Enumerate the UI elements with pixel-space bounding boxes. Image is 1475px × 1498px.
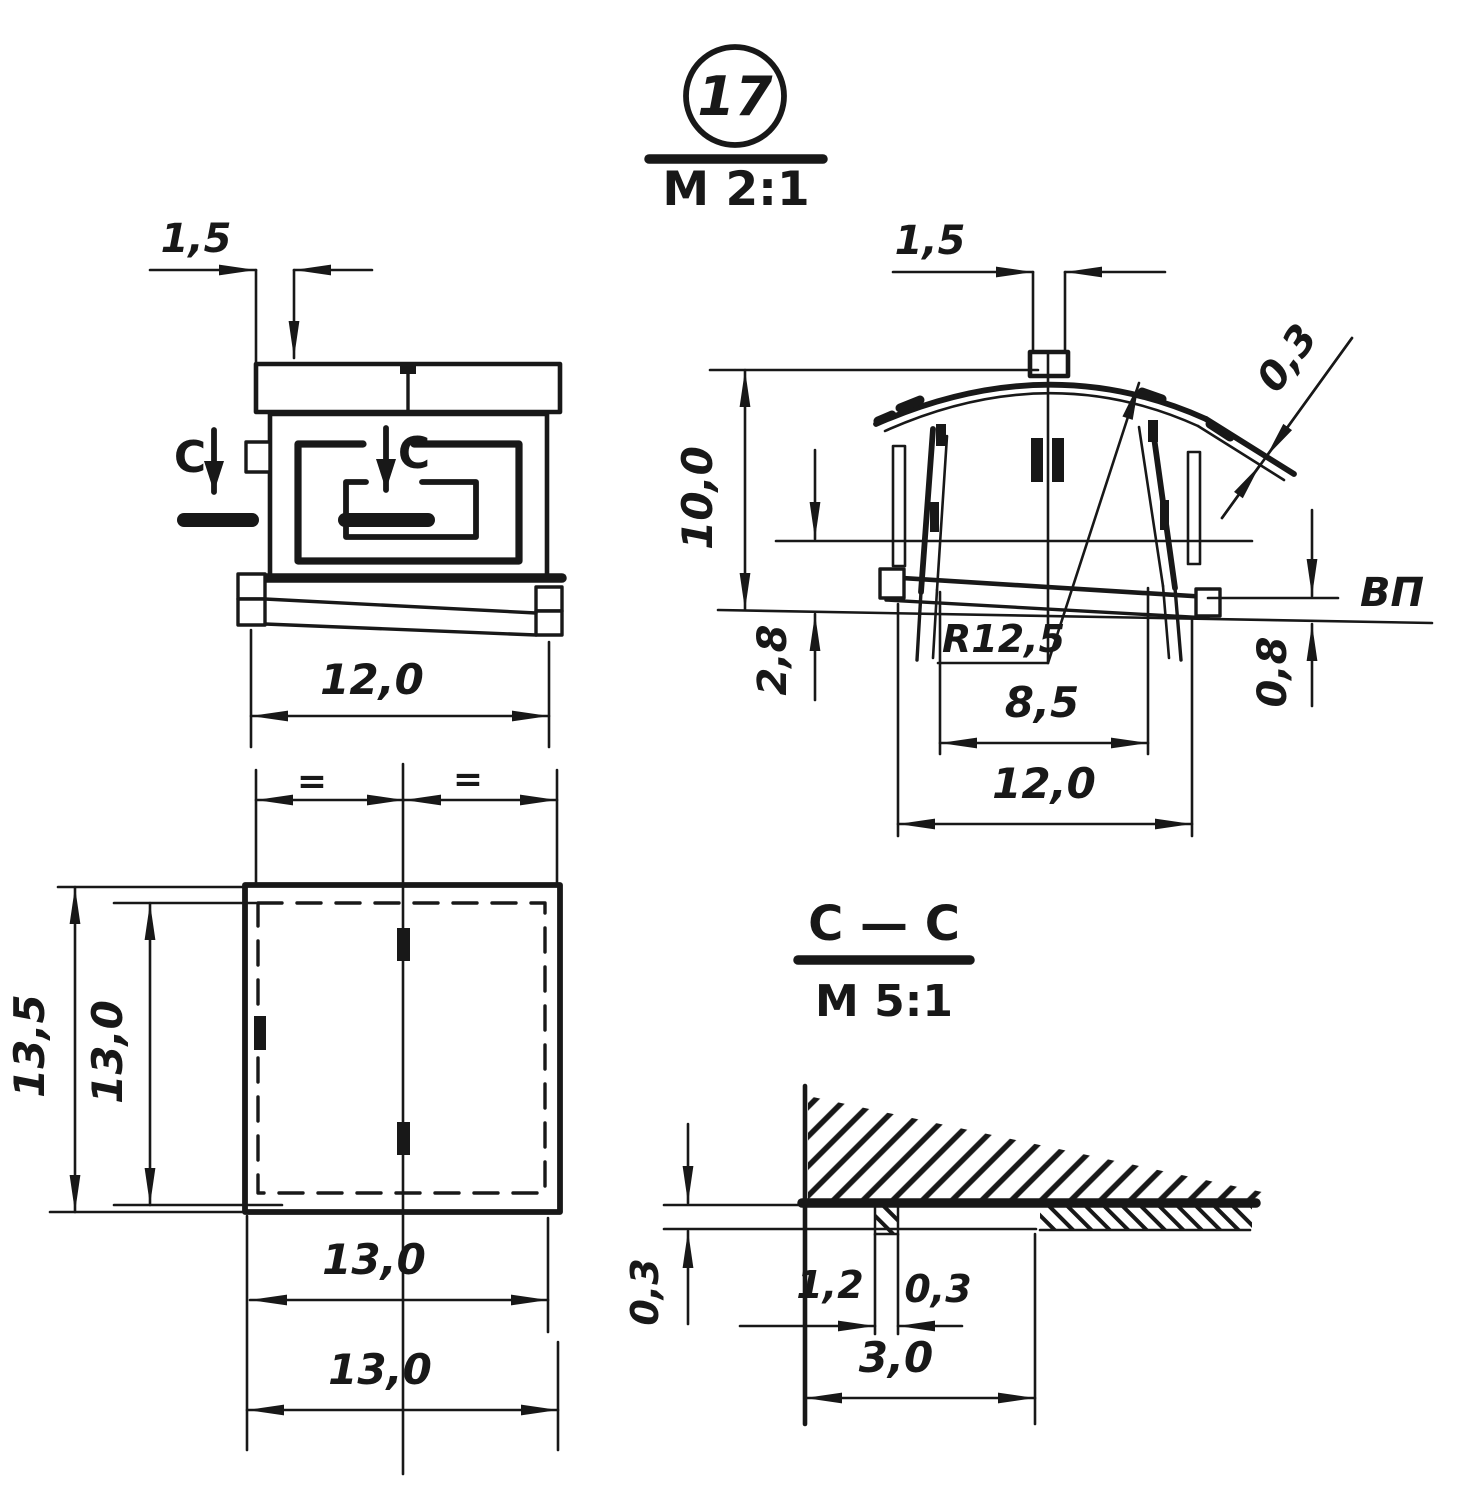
roof-right-wing-inner	[1198, 426, 1284, 480]
front-cap-notch	[400, 364, 416, 374]
dim-front-tab-offset-label: 1,5	[161, 216, 232, 262]
dim-side-tab-width: 1,5	[893, 218, 1165, 356]
plan-view: = = 13,5 13,0 13,0 13,0	[5, 759, 560, 1474]
side-right-wall-inner	[1139, 427, 1163, 586]
rib-section	[875, 1203, 898, 1234]
wall-latch-marks	[930, 420, 1169, 532]
equal-mark-left: =	[297, 761, 327, 802]
section-title: C — C	[808, 896, 960, 952]
dim-side-width-label: 12,0	[992, 759, 1096, 808]
dim-mid-to-waterline-label: 2,8	[750, 625, 796, 696]
dim-front-width-label: 12,0	[320, 655, 424, 704]
section-view: C — C M 5:1 0,3 1,2 0,3	[623, 896, 1262, 1424]
dim-section-width-label: 3,0	[859, 1333, 933, 1382]
dim-wall-thickness: 0,3	[623, 1124, 688, 1326]
dim-front-tab-offset: 1,5	[150, 216, 372, 364]
dim-sheet-thickness: 0,3	[1222, 316, 1352, 518]
plan-center-mark-lower	[397, 1122, 410, 1155]
dim-mid-to-waterline: 2,8	[750, 450, 815, 700]
center-tab-left	[1031, 438, 1043, 482]
section-hatch-block	[808, 1096, 1262, 1202]
front-slot-inner	[346, 482, 476, 537]
dim-plan-width-outer-label: 13,0	[328, 1345, 432, 1394]
side-view: 1,5	[673, 218, 1432, 836]
dim-plan-inner-depth-label: 13,0	[83, 1000, 132, 1104]
dim-wall-thickness-label: 0,3	[623, 1258, 667, 1325]
roof-arc-outer	[876, 385, 1206, 424]
dim-side-tab-width-label: 1,5	[895, 218, 966, 264]
drawing-sheet: 17 M 2:1 1,5 C C	[0, 0, 1475, 1498]
main-scale: M 2:1	[662, 162, 809, 217]
part-number: 17	[697, 65, 773, 128]
dim-plan-outer-depth-label: 13,5	[5, 994, 54, 1098]
section-title-block: C — C M 5:1	[798, 896, 970, 1027]
dim-skid-to-waterline-label: 0,8	[1250, 637, 1296, 708]
front-side-tab	[246, 442, 270, 472]
section-letter-left: C	[174, 432, 206, 483]
side-left-bracket	[893, 446, 905, 566]
dim-rib-thickness-label: 0,3	[904, 1267, 971, 1311]
dim-skid-to-waterline: 0,8	[1208, 510, 1338, 707]
plan-center-mark-upper	[397, 928, 410, 961]
side-right-bracket	[1188, 452, 1200, 564]
dim-rib-offset: 1,2	[740, 1263, 875, 1326]
front-skid	[238, 574, 562, 635]
dim-rib-offset-label: 1,2	[796, 1263, 863, 1307]
dim-rib-thickness: 0,3	[898, 1267, 972, 1326]
dim-front-width: 12,0	[251, 630, 549, 747]
roof-radius-label: R12,5	[942, 617, 1065, 661]
sheet-hatch-right	[1040, 1206, 1252, 1230]
section-arrow-left: C	[174, 430, 252, 520]
section-scale: M 5:1	[815, 976, 953, 1027]
dim-plan-width-inner-label: 13,0	[322, 1235, 426, 1284]
engineering-drawing: 17 M 2:1 1,5 C C	[0, 0, 1475, 1498]
dim-side-height-label: 10,0	[673, 446, 722, 550]
front-view: 1,5 C C	[150, 216, 562, 747]
dim-equal-halves: = =	[256, 759, 557, 886]
dim-side-height: 10,0	[673, 370, 1038, 610]
plan-edge-mark	[254, 1016, 266, 1050]
dim-side-inner-width-label: 8,5	[1005, 678, 1079, 727]
dim-plan-inner-depth: 13,0	[83, 903, 282, 1205]
dim-plan-width-inner: 13,0	[247, 1216, 548, 1450]
title-block: 17 M 2:1	[649, 47, 823, 217]
equal-mark-right: =	[453, 759, 483, 800]
roof-radius-callout: R12,5	[938, 383, 1139, 663]
waterline-label: ВП	[1360, 570, 1424, 616]
center-tab-right	[1052, 438, 1064, 482]
section-letter-middle: C	[398, 428, 430, 479]
